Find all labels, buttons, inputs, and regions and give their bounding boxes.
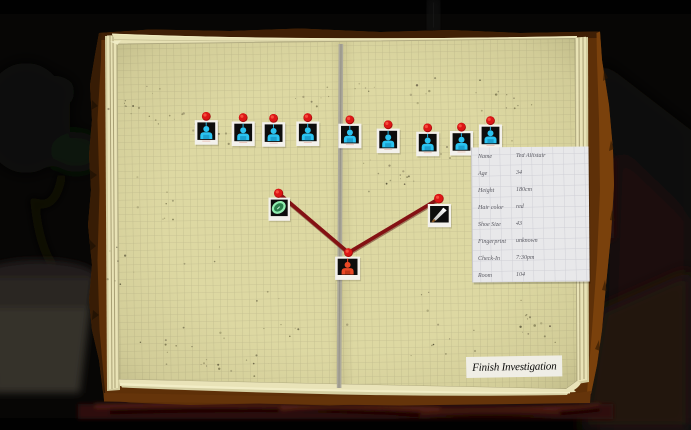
- svg-text:43: 43: [516, 220, 522, 227]
- svg-text:Name: Name: [477, 154, 492, 160]
- svg-text:Shoe Size: Shoe Size: [478, 222, 501, 228]
- svg-text:34: 34: [515, 169, 522, 176]
- svg-text:Hair color: Hair color: [477, 205, 504, 211]
- svg-text:red: red: [516, 204, 525, 210]
- svg-text:Ted Allistair: Ted Allistair: [516, 153, 546, 159]
- svg-text:7:30pm: 7:30pm: [516, 255, 535, 261]
- svg-text:Fingerprint: Fingerprint: [477, 239, 506, 245]
- svg-text:unknown: unknown: [516, 238, 538, 244]
- svg-text:Age: Age: [477, 171, 488, 177]
- svg-text:Height: Height: [477, 188, 495, 194]
- svg-text:180cm: 180cm: [516, 187, 533, 193]
- svg-text:Check-In: Check-In: [478, 256, 500, 262]
- svg-text:104: 104: [516, 271, 525, 278]
- svg-text:Room: Room: [477, 273, 493, 279]
- svg-text:Finish Investigation: Finish Investigation: [471, 360, 557, 373]
